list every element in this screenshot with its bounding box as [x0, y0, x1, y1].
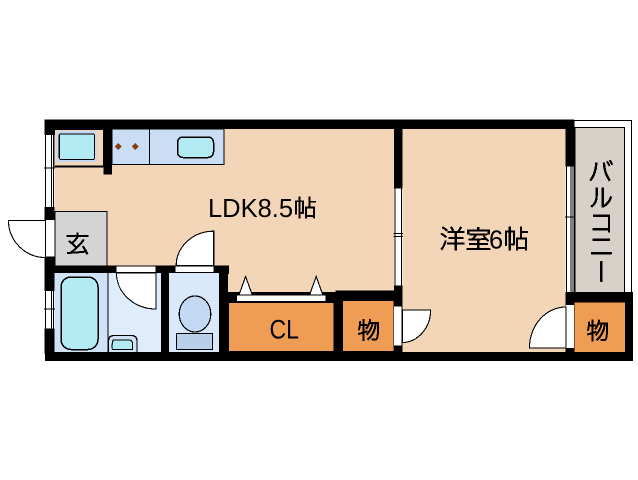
svg-text:LDK8.5: LDK8.5: [208, 195, 293, 223]
svg-text:CL: CL: [270, 315, 300, 345]
svg-text:6: 6: [489, 227, 503, 255]
